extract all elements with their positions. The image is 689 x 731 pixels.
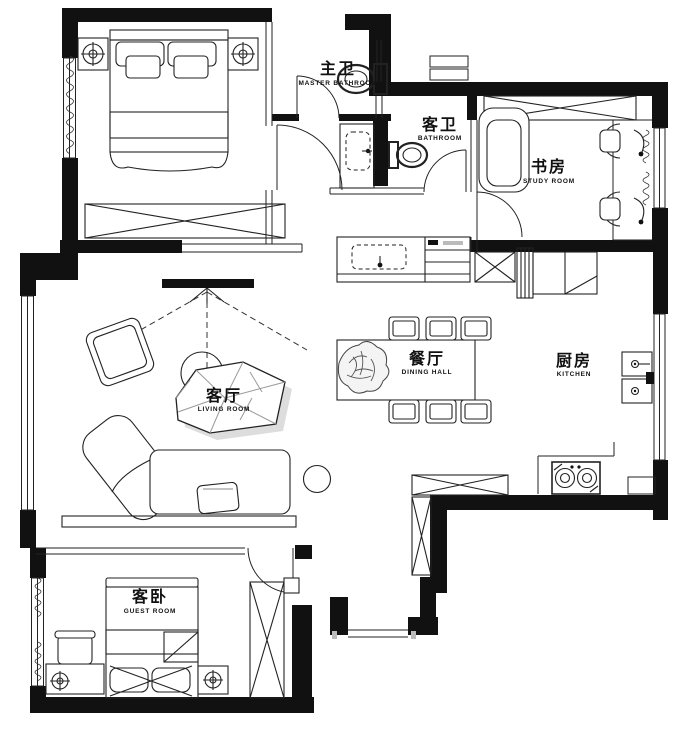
nightstand-left <box>78 38 108 70</box>
wardrobe-guest <box>250 578 299 698</box>
vanity-sink <box>340 124 374 188</box>
label-kitchen-en: KITCHEN <box>557 371 592 378</box>
master-bedroom-furniture <box>78 30 285 238</box>
counter-bottom <box>538 442 655 494</box>
label-study-zh: 书房 <box>531 157 567 176</box>
tv <box>162 279 254 304</box>
lounge-chair <box>479 108 529 192</box>
label-dining-en: DINING HALL <box>402 369 453 376</box>
label-guest-zh: 客卧 <box>132 587 168 606</box>
guest-nightstand <box>198 666 228 694</box>
shoe-cabinet <box>412 497 431 575</box>
wardrobe-master <box>85 204 285 238</box>
toilet-guest <box>389 142 427 168</box>
entry-sideboard <box>412 475 508 495</box>
study-door <box>477 192 522 237</box>
master-bedroom-door <box>277 125 342 190</box>
dining-chairs-top <box>389 317 491 340</box>
table-plant <box>338 341 388 393</box>
label-study-en: STUDY ROOM <box>523 178 575 185</box>
label-bathroom-zh: 客卫 <box>422 115 458 134</box>
cooktop <box>552 462 600 494</box>
living-room-furniture <box>62 279 331 527</box>
label-bathroom-en: BATHROOM <box>418 135 462 142</box>
guest-bathroom-door <box>424 150 466 192</box>
label-living-zh: 客厅 <box>206 386 242 405</box>
guest-desk-chair <box>55 631 95 664</box>
side-table <box>304 466 331 493</box>
label-living-en: LIVING ROOM <box>198 406 251 413</box>
label-kitchen-zh: 厨房 <box>556 351 592 370</box>
guest-bathroom-fixtures <box>389 142 427 168</box>
label-dining-zh: 餐厅 <box>408 349 445 368</box>
double-bed <box>110 30 228 171</box>
guest-desk <box>46 664 104 694</box>
floor-plan-drawing: 主卫 MASTER BATHROOM 客卫 BATHROOM 书房 STUDY … <box>0 0 689 731</box>
guest-room-furniture <box>46 578 299 698</box>
shaft <box>475 252 515 282</box>
desk-chair-1 <box>600 124 644 158</box>
refrigerator <box>533 252 597 294</box>
duct <box>517 248 533 298</box>
floor-plan: 主卫 MASTER BATHROOM 客卫 BATHROOM 书房 STUDY … <box>0 0 689 731</box>
label-guest-en: GUEST ROOM <box>124 608 176 615</box>
label-master-bathroom-en: MASTER BATHROOM <box>298 80 377 87</box>
kitchen-sink-units <box>622 352 654 403</box>
label-master-bathroom-zh: 主卫 <box>320 59 356 78</box>
entry-furniture <box>412 475 508 575</box>
dining-chairs-bottom <box>389 400 491 423</box>
desk-chair-2 <box>600 192 644 226</box>
island-counter <box>337 237 470 282</box>
nightstand-right <box>228 38 258 70</box>
